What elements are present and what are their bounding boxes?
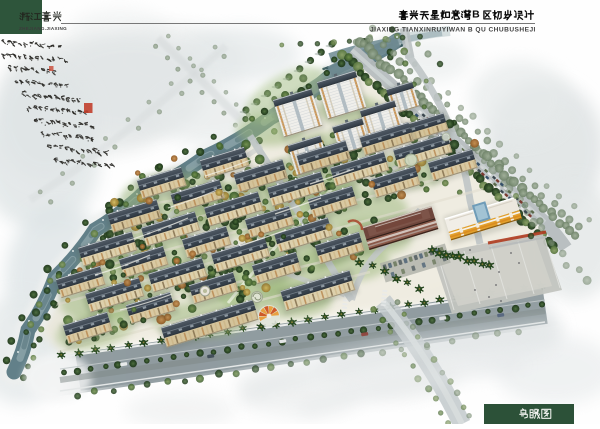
svg-text:JIAXING TIANXINRUYIWAN B QU CH: JIAXING TIANXINRUYIWAN B QU CHUBUSHEJI [370, 27, 536, 34]
svg-text:B: B [472, 9, 480, 21]
svg-text:ZHEJIANG.JIAXING: ZHEJIANG.JIAXING [19, 26, 67, 31]
